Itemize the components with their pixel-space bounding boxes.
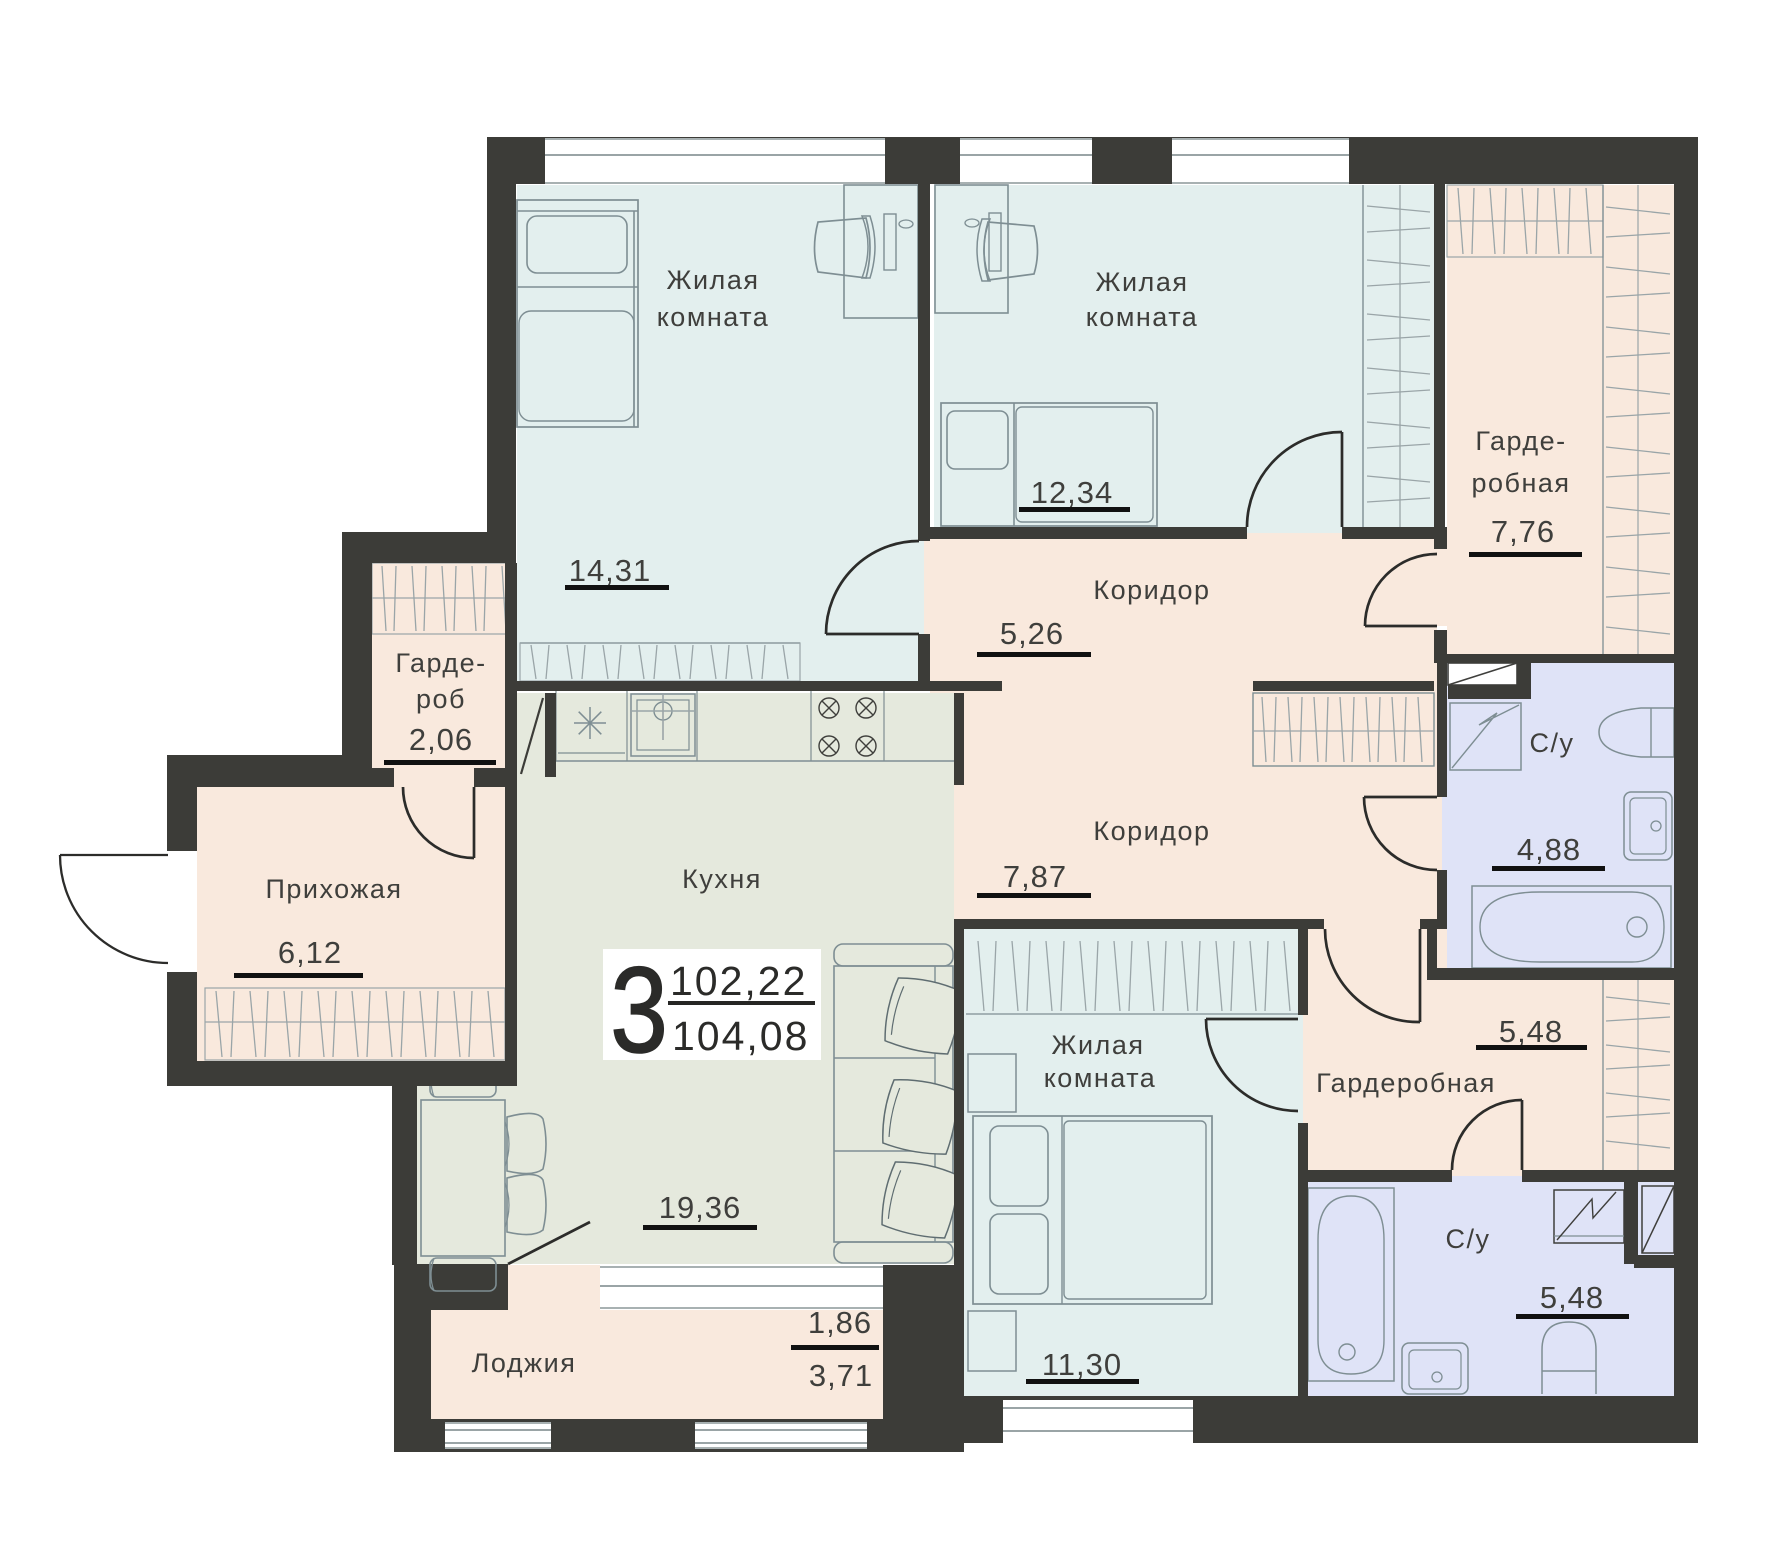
svg-text:Жилая: Жилая [1052, 1030, 1145, 1060]
svg-text:Коридор: Коридор [1093, 816, 1210, 846]
svg-text:комната: комната [657, 302, 770, 332]
svg-text:5,48: 5,48 [1540, 1280, 1604, 1315]
svg-text:комната: комната [1044, 1063, 1157, 1093]
svg-text:3,71: 3,71 [809, 1358, 873, 1393]
svg-text:Кухня: Кухня [682, 864, 762, 894]
svg-text:14,31: 14,31 [569, 553, 652, 588]
svg-text:Лоджия: Лоджия [472, 1348, 577, 1378]
svg-text:1,86: 1,86 [808, 1305, 872, 1340]
svg-text:102,22: 102,22 [670, 958, 807, 1004]
svg-text:Гарде-: Гарде- [1475, 426, 1566, 456]
svg-text:7,87: 7,87 [1003, 859, 1067, 894]
svg-text:С/у: С/у [1446, 1224, 1491, 1254]
svg-text:комната: комната [1086, 302, 1199, 332]
svg-text:4,88: 4,88 [1517, 832, 1581, 867]
svg-text:роб: роб [416, 684, 466, 714]
svg-text:7,76: 7,76 [1491, 514, 1555, 549]
svg-text:19,36: 19,36 [659, 1190, 742, 1225]
svg-text:104,08: 104,08 [672, 1013, 809, 1059]
svg-text:Жилая: Жилая [667, 265, 760, 295]
svg-text:Гардеробная: Гардеробная [1316, 1068, 1496, 1098]
svg-text:11,30: 11,30 [1042, 1347, 1122, 1382]
svg-text:Гарде-: Гарде- [395, 648, 486, 678]
svg-text:С/у: С/у [1530, 728, 1575, 758]
svg-text:5,26: 5,26 [1000, 616, 1064, 651]
svg-text:Прихожая: Прихожая [265, 874, 402, 904]
svg-text:5,48: 5,48 [1499, 1014, 1563, 1049]
svg-text:Коридор: Коридор [1093, 575, 1210, 605]
svg-text:2,06: 2,06 [409, 722, 473, 757]
svg-text:3: 3 [610, 942, 668, 1078]
svg-text:12,34: 12,34 [1031, 475, 1114, 510]
svg-text:робная: робная [1471, 468, 1570, 498]
svg-text:Жилая: Жилая [1096, 267, 1189, 297]
svg-text:6,12: 6,12 [278, 935, 342, 970]
